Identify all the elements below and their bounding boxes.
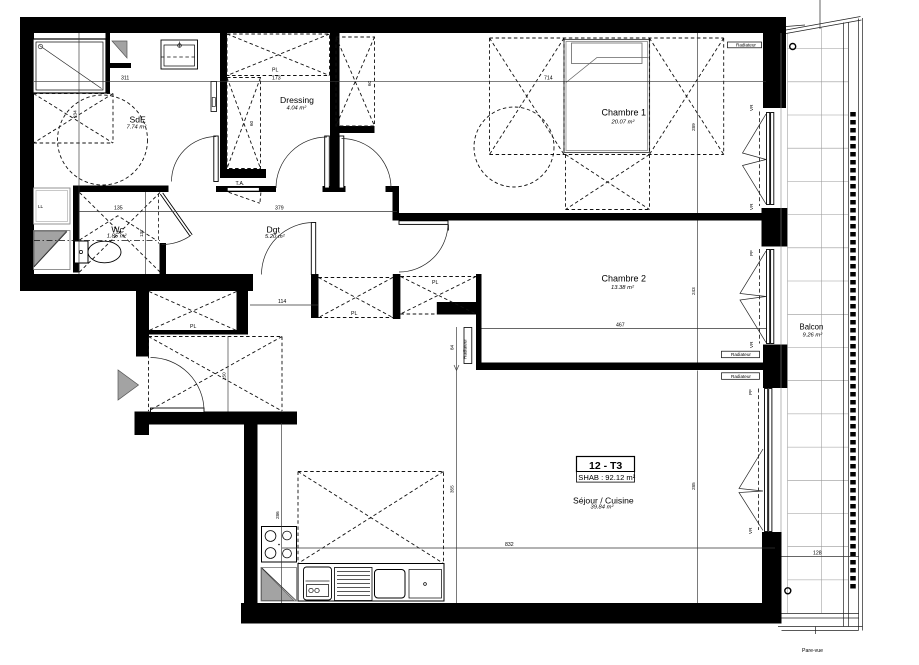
svg-text:SdE: SdE bbox=[130, 114, 147, 124]
svg-text:285: 285 bbox=[691, 482, 696, 490]
svg-text:PL: PL bbox=[272, 68, 278, 74]
svg-text:Radiateur: Radiateur bbox=[731, 374, 751, 379]
svg-text:Chambre 1: Chambre 1 bbox=[602, 108, 647, 118]
svg-text:243: 243 bbox=[691, 287, 696, 295]
svg-text:150: 150 bbox=[222, 372, 227, 380]
svg-text:39.84 m²: 39.84 m² bbox=[591, 505, 615, 511]
svg-text:114: 114 bbox=[278, 299, 286, 305]
svg-text:467: 467 bbox=[616, 323, 625, 329]
svg-text:311: 311 bbox=[121, 76, 129, 82]
svg-text:PL: PL bbox=[190, 324, 196, 330]
svg-text:PL: PL bbox=[351, 311, 357, 317]
svg-text:Pare-vue: Pare-vue bbox=[802, 648, 823, 654]
svg-text:SHAB : 92.12 m²: SHAB : 92.12 m² bbox=[578, 473, 635, 482]
svg-text:PF: PF bbox=[749, 250, 754, 256]
svg-text:135: 135 bbox=[114, 206, 123, 212]
svg-text:Balcon: Balcon bbox=[800, 323, 824, 332]
svg-text:VR: VR bbox=[749, 203, 754, 210]
svg-text:84: 84 bbox=[450, 344, 455, 350]
svg-text:60: 60 bbox=[249, 120, 254, 126]
svg-text:20.07 m²: 20.07 m² bbox=[611, 120, 636, 126]
svg-text:Dressing: Dressing bbox=[280, 95, 314, 105]
svg-text:Radiateur: Radiateur bbox=[731, 352, 751, 357]
svg-text:VR: VR bbox=[748, 527, 753, 534]
svg-text:VR: VR bbox=[749, 341, 754, 348]
svg-text:12 - T3: 12 - T3 bbox=[589, 460, 622, 472]
svg-text:289: 289 bbox=[691, 123, 696, 131]
svg-text:13.38 m²: 13.38 m² bbox=[611, 285, 635, 291]
svg-text:355: 355 bbox=[450, 485, 455, 493]
svg-text:714: 714 bbox=[544, 76, 553, 82]
svg-text:PL: PL bbox=[432, 280, 438, 286]
svg-text:VR: VR bbox=[749, 104, 754, 111]
svg-text:1.85 m²: 1.85 m² bbox=[107, 234, 128, 240]
svg-text:137: 137 bbox=[139, 229, 144, 237]
svg-text:PF: PF bbox=[748, 389, 753, 395]
svg-text:Radiateur: Radiateur bbox=[463, 339, 468, 359]
svg-text:4.04 m²: 4.04 m² bbox=[287, 105, 308, 111]
svg-text:Radiateur: Radiateur bbox=[736, 43, 756, 48]
svg-text:7.74 m²: 7.74 m² bbox=[127, 125, 148, 131]
svg-text:Chambre 2: Chambre 2 bbox=[602, 274, 647, 284]
svg-text:LL: LL bbox=[38, 204, 44, 209]
svg-text:5.20 m²: 5.20 m² bbox=[265, 234, 286, 240]
svg-text:832: 832 bbox=[505, 542, 514, 548]
svg-text:286: 286 bbox=[275, 511, 280, 519]
svg-text:379: 379 bbox=[275, 206, 284, 212]
svg-text:9.26 m²: 9.26 m² bbox=[803, 333, 824, 339]
svg-text:128: 128 bbox=[813, 551, 822, 557]
svg-text:173: 173 bbox=[272, 76, 281, 82]
svg-text:234: 234 bbox=[73, 110, 78, 118]
svg-text:T.A.: T.A. bbox=[236, 181, 245, 187]
